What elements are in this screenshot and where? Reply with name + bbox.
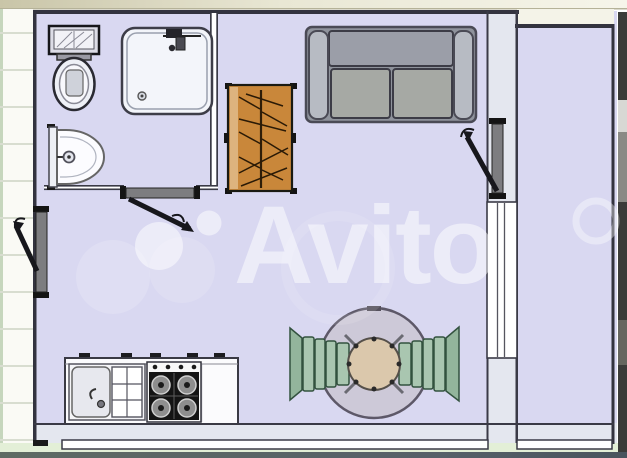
sofa-armrest-right: [454, 31, 473, 119]
avito-watermark-text: Avito: [234, 184, 495, 307]
kitchen-sink: [69, 364, 145, 420]
balcony-floor: [519, 28, 611, 423]
top-strip: [0, 0, 627, 9]
sofa-cushion-left: [331, 69, 390, 118]
wall-balcony-top: [515, 24, 614, 28]
kitchen-counter: [65, 353, 238, 424]
bottom-dark-strip: [0, 452, 627, 458]
sofa-cushion-right: [393, 69, 452, 118]
sofa-backrest: [329, 31, 453, 66]
avito-logo-dot-small: [197, 211, 222, 236]
wardrobe: [224, 83, 297, 194]
bottom-window-balcony: [517, 440, 612, 449]
sofa-armrest-left: [309, 31, 328, 119]
gas-stove: [147, 362, 201, 422]
table-base: [345, 335, 403, 393]
sofa: [306, 27, 476, 122]
wall-corner-foot: [33, 440, 48, 446]
floor-plan-canvas: Avito: [0, 0, 627, 458]
toilet: [49, 26, 99, 110]
wall-top: [33, 10, 519, 14]
bottom-window-main: [62, 440, 488, 449]
avito-logo-dot-large: [135, 222, 183, 270]
floor-plan-image: Avito: [0, 0, 627, 458]
balcony-top-gap: [517, 9, 614, 26]
shower-tray: [122, 28, 212, 114]
right-dark-strip: [618, 12, 627, 452]
